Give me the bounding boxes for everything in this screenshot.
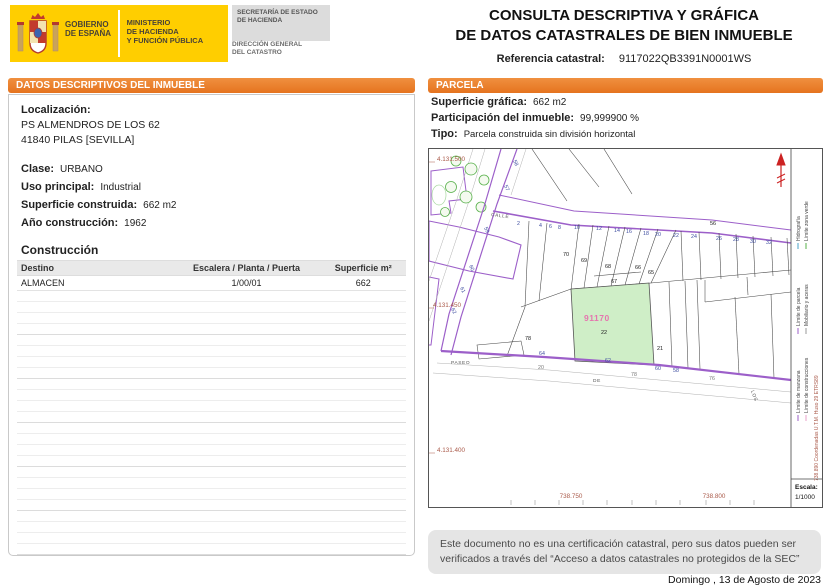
parcel-line xyxy=(539,223,547,301)
secretaria-estado-label: SECRETARÍA DE ESTADO DE HACIENDA xyxy=(232,5,330,41)
legend-label: Límite de parcela xyxy=(796,287,802,326)
legend-label: Límite de construcciones xyxy=(804,357,810,413)
col-superficie: Superficie m² xyxy=(320,261,406,276)
construccion-table: Destino Escalera / Planta / Puerta Super… xyxy=(17,260,406,290)
street-name-de: DE xyxy=(593,378,601,384)
cadastral-map: Hidrografía Límite zona verde Límite de … xyxy=(429,149,822,507)
geo-label: 4.131.400 xyxy=(437,447,466,454)
portal-number: 18 xyxy=(643,231,649,237)
field-label: Año construcción: xyxy=(21,217,118,229)
datos-descriptivos-panel: DATOS DESCRIPTIVOS DEL INMUEBLE Localiza… xyxy=(8,78,415,556)
field-superficie-construida: Superficie construida:662 m2 xyxy=(21,198,406,213)
tree-icon xyxy=(460,191,472,203)
sidewalk-line xyxy=(433,373,791,403)
street-edge xyxy=(441,149,501,351)
coat-of-arms-icon xyxy=(16,9,60,59)
parcel-line xyxy=(597,226,609,287)
field-value: Parcela construida sin división horizont… xyxy=(464,129,636,140)
parcel-line xyxy=(697,280,700,369)
document-title: CONSULTA DESCRIPTIVA Y GRÁFICA DE DATOS … xyxy=(425,6,823,65)
portal-number: 60 xyxy=(655,366,661,372)
parcel-line xyxy=(625,228,641,285)
title-line-2: DE DATOS CATASTRALES DE BIEN INMUEBLE xyxy=(425,26,823,46)
field-clase: Clase:URBANO xyxy=(21,162,406,177)
portal-number: 26 xyxy=(716,236,722,242)
field-tipo: Tipo:Parcela construida sin división hor… xyxy=(431,128,823,141)
field-label: Tipo: xyxy=(431,128,458,140)
highlight-parcel-ref: 91170 xyxy=(584,313,610,323)
portal-number: 10 xyxy=(574,225,580,231)
field-value: Industrial xyxy=(100,182,141,193)
parcela-panel: PARCELA Superficie gráfica:662 m2 Partic… xyxy=(428,78,823,588)
manzana-block xyxy=(429,277,439,345)
field-value: 99,999900 % xyxy=(580,113,639,124)
tree-icon xyxy=(479,175,489,185)
portal-number: 76 xyxy=(709,376,715,382)
address-line-2: 41840 PILAS [SEVILLA] xyxy=(21,134,406,147)
construccion-title: Construcción xyxy=(21,243,406,257)
parcel-line xyxy=(685,281,688,368)
datos-descriptivos-banner: DATOS DESCRIPTIVOS DEL INMUEBLE xyxy=(8,78,415,93)
portal-number: 30 xyxy=(750,239,756,245)
field-value: URBANO xyxy=(60,164,103,175)
portal-number: 32 xyxy=(766,240,772,246)
spacer xyxy=(17,147,406,159)
portal-number: 62 xyxy=(605,358,611,364)
parcel-line xyxy=(699,232,701,280)
scale-label: Escala: xyxy=(795,484,818,491)
parcel-line xyxy=(787,238,789,275)
address-line-1: PS ALMENDROS DE LOS 62 xyxy=(21,119,406,132)
portal-number: 64 xyxy=(539,351,545,357)
cell-destino: ALMACEN xyxy=(17,276,173,291)
portal-number: 22 xyxy=(673,233,679,239)
parcel-line xyxy=(521,270,791,307)
scale-value: 1/1000 xyxy=(795,494,815,501)
logo-divider xyxy=(118,10,120,57)
field-uso-principal: Uso principal:Industrial xyxy=(21,180,406,195)
portal-number: 61 xyxy=(458,286,466,294)
parcel-number: 68 xyxy=(605,264,611,270)
geo-label: 4.131.450 xyxy=(433,302,462,309)
parcela-banner: PARCELA xyxy=(428,78,823,93)
field-label: Clase: xyxy=(21,163,54,175)
x-tick-label: 738.800 xyxy=(703,493,726,500)
referencia-catastral: Referencia catastral:9117022QB3391N0001W… xyxy=(425,53,823,65)
parcel-line xyxy=(594,272,641,276)
parcel-number: 67 xyxy=(611,279,617,285)
x-tick-label: 738.750 xyxy=(560,493,583,500)
portal-number: 28 xyxy=(733,237,739,243)
parcel-line xyxy=(669,282,672,367)
cadastral-map-frame: Hidrografía Límite zona verde Límite de … xyxy=(428,148,823,508)
legend-label: Mobiliario y aceras xyxy=(804,284,810,326)
manzana-block xyxy=(429,221,521,279)
highlight-parcel-number: 22 xyxy=(601,330,607,336)
portal-number: 14 xyxy=(614,228,620,234)
tree-icon xyxy=(441,208,450,217)
zona-verde-outline xyxy=(432,185,446,205)
parcel-line xyxy=(604,149,632,194)
portal-number: 12 xyxy=(596,226,602,232)
direccion-general-label: DIRECCIÓN GENERAL DEL CATASTRO xyxy=(232,41,302,57)
gobierno-label: GOBIERNO DE ESPAÑA xyxy=(65,20,111,62)
portal-number: 20 xyxy=(538,365,544,371)
north-arrow-icon xyxy=(777,154,785,187)
parcel-number: 65 xyxy=(648,270,654,276)
parcel-line xyxy=(747,277,748,295)
col-destino: Destino xyxy=(17,261,173,276)
empty-ruled-rows xyxy=(17,290,406,556)
portal-number: 62 xyxy=(449,307,457,315)
portal-number: 57 xyxy=(502,184,510,192)
localizacion-label: Localización: xyxy=(21,104,406,116)
geo-label: 4.131.500 xyxy=(437,156,466,163)
parcel-line xyxy=(681,231,683,281)
parcel-line xyxy=(611,227,625,286)
construccion-header-row: Destino Escalera / Planta / Puerta Super… xyxy=(17,261,406,276)
street-name-paseo: PASEO xyxy=(451,360,470,366)
field-label: Superficie gráfica: xyxy=(431,96,527,108)
portal-number: 16 xyxy=(626,229,632,235)
title-line-1: CONSULTA DESCRIPTIVA Y GRÁFICA xyxy=(425,6,823,26)
construccion-data-row: ALMACEN 1/00/01 662 xyxy=(17,276,406,291)
legend-label: Hidrografía xyxy=(796,216,802,241)
portal-number: 2 xyxy=(517,221,520,227)
field-label: Superficie construida: xyxy=(21,199,137,211)
x-axis-ticks xyxy=(511,500,754,505)
portal-number: 24 xyxy=(691,234,697,240)
parcel-number: 66 xyxy=(635,265,641,271)
portal-number: 8 xyxy=(558,225,561,231)
calle-upper-edge xyxy=(499,195,791,230)
field-participacion: Participación del inmueble:99,999900 % xyxy=(431,112,823,125)
ministerio-label: MINISTERIO DE HACIENDA Y FUNCIÓN PÚBLICA xyxy=(127,18,204,62)
field-value: 662 m2 xyxy=(533,97,566,108)
parcel-number: 70 xyxy=(563,252,569,258)
field-label: Uso principal: xyxy=(21,181,94,193)
referencia-label: Referencia catastral: xyxy=(497,53,605,65)
tree-icon xyxy=(446,182,457,193)
parcel-number: 78 xyxy=(525,336,531,342)
parcel-line xyxy=(571,224,579,290)
referencia-value: 9117022QB3391N0001WS xyxy=(619,53,752,65)
datos-descriptivos-box: Localización: PS ALMENDROS DE LOS 62 418… xyxy=(8,94,415,556)
parcel-line xyxy=(771,294,774,378)
portal-number: 58 xyxy=(511,159,519,167)
sidewalk-line xyxy=(511,149,526,195)
tree-icon xyxy=(465,163,477,175)
col-escalera-planta-puerta: Escalera / Planta / Puerta xyxy=(173,261,321,276)
legend-label: Límite de manzana xyxy=(796,370,802,413)
parcel-line xyxy=(735,297,739,374)
portal-number: 6 xyxy=(549,224,552,230)
legend-label: Límite zona verde xyxy=(804,201,810,241)
cell-escalera: 1/00/01 xyxy=(173,276,321,291)
portal-number: 78 xyxy=(631,372,637,378)
portal-number: 20 xyxy=(655,232,661,238)
parcel-number: 56 xyxy=(710,221,716,227)
portal-number: 58 xyxy=(673,368,679,374)
cell-superficie: 662 xyxy=(320,276,406,291)
portal-number: 4 xyxy=(539,223,542,229)
field-label: Participación del inmueble: xyxy=(431,112,574,124)
field-value: 662 m2 xyxy=(143,200,176,211)
utm-note: 738.890 Coordenadas U.T.M. Huso 29 ETRS8… xyxy=(814,375,820,481)
disclaimer-box: Este documento no es una certificación c… xyxy=(428,530,821,574)
street-name-los: LOS xyxy=(749,390,759,403)
field-superficie-grafica: Superficie gráfica:662 m2 xyxy=(431,96,823,109)
sidewalk-line xyxy=(429,149,485,321)
sidewalk-line xyxy=(437,363,791,392)
highlighted-parcel xyxy=(571,283,654,365)
cadastral-document-page: GOBIERNO DE ESPAÑA MINISTERIO DE HACIEND… xyxy=(0,0,831,588)
parcel-number: 21 xyxy=(657,346,663,352)
parcel-number: 69 xyxy=(581,258,587,264)
parcel-line xyxy=(584,225,593,288)
document-date: Domingo , 13 de Agosto de 2023 xyxy=(668,574,821,586)
parcel-line xyxy=(525,221,529,307)
government-logo: GOBIERNO DE ESPAÑA MINISTERIO DE HACIEND… xyxy=(10,5,228,62)
field-ano-construccion: Año construcción:1962 xyxy=(21,216,406,231)
parcel-line xyxy=(507,307,525,356)
parcel-line xyxy=(569,149,599,187)
field-value: 1962 xyxy=(124,218,146,229)
parcel-line xyxy=(532,149,567,201)
